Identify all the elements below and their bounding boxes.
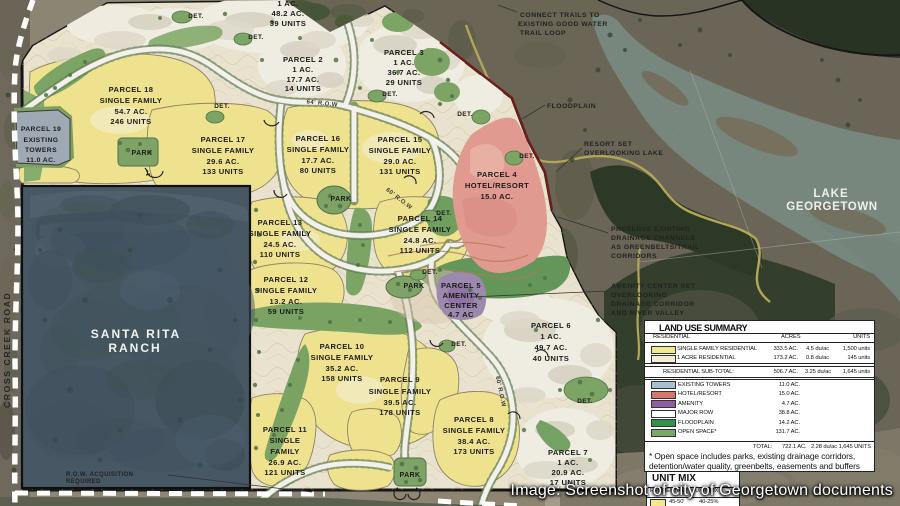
svg-text:SANTA RITA: SANTA RITA (91, 327, 181, 341)
svg-text:DET.: DET. (457, 111, 472, 118)
svg-text:173 UNITS: 173 UNITS (453, 447, 494, 456)
svg-text:158 UNITS: 158 UNITS (321, 374, 362, 383)
svg-text:110 UNITS: 110 UNITS (260, 250, 301, 259)
svg-text:13.2 AC.: 13.2 AC. (270, 297, 303, 306)
svg-text:SINGLE FAMILY: SINGLE FAMILY (369, 146, 432, 155)
svg-text:SINGLE FAMILY: SINGLE FAMILY (311, 353, 374, 362)
svg-text:DRAINAGE CORRIDOR: DRAINAGE CORRIDOR (611, 301, 695, 308)
svg-text:OVERLOOKING: OVERLOOKING (611, 292, 667, 299)
svg-text:PARCEL 10: PARCEL 10 (320, 342, 365, 351)
svg-text:DET.: DET. (214, 103, 229, 110)
svg-text:38.4 AC.: 38.4 AC. (458, 437, 491, 446)
svg-text:PARCEL 7: PARCEL 7 (548, 448, 588, 457)
svg-text:1 AC.: 1 AC. (277, 0, 298, 8)
svg-text:FAMILY: FAMILY (270, 447, 300, 456)
svg-text:FLOODPLAIN: FLOODPLAIN (547, 103, 596, 110)
svg-text:EXISTING GOOD WATER: EXISTING GOOD WATER (518, 21, 608, 28)
svg-text:1 AC.: 1 AC. (540, 332, 561, 341)
svg-text:20.9 AC.: 20.9 AC. (552, 468, 585, 477)
svg-text:PARCEL 8: PARCEL 8 (454, 415, 494, 424)
svg-text:PARCEL 17: PARCEL 17 (201, 135, 246, 144)
svg-text:178 UNITS: 178 UNITS (379, 408, 420, 417)
svg-text:GEORGETOWN: GEORGETOWN (786, 201, 877, 213)
svg-text:17.7 AC.: 17.7 AC. (287, 75, 320, 84)
svg-text:SINGLE FAMILY: SINGLE FAMILY (369, 387, 432, 396)
svg-text:DET.: DET. (519, 153, 534, 160)
svg-text:PARCEL 9: PARCEL 9 (380, 375, 420, 384)
svg-text:SINGLE FAMILY: SINGLE FAMILY (100, 96, 163, 105)
svg-text:AMENITY CENTER SET: AMENITY CENTER SET (611, 283, 696, 290)
svg-text:SINGLE: SINGLE (270, 436, 301, 445)
svg-text:15.0 AC.: 15.0 AC. (481, 192, 514, 201)
svg-text:SINGLE FAMILY: SINGLE FAMILY (287, 145, 350, 154)
svg-text:PARK: PARK (331, 196, 352, 203)
svg-text:AND RIVER VALLEY: AND RIVER VALLEY (611, 310, 685, 317)
svg-text:AMENITY: AMENITY (443, 291, 480, 300)
svg-text:29.0 AC.: 29.0 AC. (384, 157, 417, 166)
svg-text:49.7 AC.: 49.7 AC. (535, 343, 568, 352)
svg-text:35.2 AC.: 35.2 AC. (326, 364, 359, 373)
svg-text:59 UNITS: 59 UNITS (268, 307, 305, 316)
svg-text:40 UNITS: 40 UNITS (533, 354, 570, 363)
svg-text:PARK: PARK (400, 472, 421, 479)
svg-text:PARCEL 15: PARCEL 15 (378, 135, 423, 144)
svg-text:112 UNITS: 112 UNITS (400, 246, 441, 255)
svg-text:PARCEL 2: PARCEL 2 (283, 55, 323, 64)
svg-text:17.7 AC.: 17.7 AC. (302, 156, 335, 165)
svg-text:PARCEL 13: PARCEL 13 (258, 218, 303, 227)
svg-text:TRAIL LOOP: TRAIL LOOP (520, 30, 566, 37)
svg-text:EXISTING: EXISTING (24, 137, 59, 144)
svg-text:48.2 AC.: 48.2 AC. (272, 9, 305, 18)
svg-text:29 UNITS: 29 UNITS (386, 78, 423, 87)
svg-text:DET.: DET. (248, 34, 263, 41)
svg-text:SINGLE FAMILY: SINGLE FAMILY (192, 146, 255, 155)
svg-text:DET.: DET. (188, 13, 203, 20)
svg-text:CORRIDORS: CORRIDORS (611, 253, 657, 260)
svg-text:1 AC.: 1 AC. (292, 65, 313, 74)
svg-text:R.O.W. ACQUISITION: R.O.W. ACQUISITION (66, 472, 133, 478)
svg-text:PARCEL 12: PARCEL 12 (264, 275, 309, 284)
svg-text:39.5 AC.: 39.5 AC. (384, 398, 417, 407)
svg-text:DET.: DET. (382, 91, 397, 98)
svg-text:PARCEL 18: PARCEL 18 (109, 85, 154, 94)
svg-text:SINGLE FAMILY: SINGLE FAMILY (249, 229, 312, 238)
svg-text:RANCH: RANCH (108, 341, 161, 355)
svg-text:LAKE: LAKE (813, 188, 848, 200)
svg-text:CONNECT TRAILS TO: CONNECT TRAILS TO (520, 12, 600, 19)
svg-text:PARCEL 19: PARCEL 19 (21, 126, 61, 133)
svg-text:PARCEL 4: PARCEL 4 (477, 170, 517, 179)
svg-text:131 UNITS: 131 UNITS (379, 167, 420, 176)
svg-text:AS GREENBELTS/TRAIL: AS GREENBELTS/TRAIL (611, 244, 700, 251)
svg-text:133 UNITS: 133 UNITS (202, 167, 243, 176)
svg-text:246 UNITS: 246 UNITS (110, 117, 151, 126)
svg-text:11.0 AC.: 11.0 AC. (26, 157, 55, 164)
svg-text:SINGLE FAMILY: SINGLE FAMILY (389, 225, 452, 234)
svg-text:39 UNITS: 39 UNITS (270, 19, 307, 28)
svg-text:36.7 AC.: 36.7 AC. (388, 68, 421, 77)
svg-text:PRESERVE EXISTING: PRESERVE EXISTING (611, 226, 690, 233)
svg-text:26.9 AC.: 26.9 AC. (269, 458, 302, 467)
svg-text:1 AC.: 1 AC. (393, 58, 414, 67)
svg-text:DET.: DET. (436, 210, 451, 217)
svg-text:4.7 AC: 4.7 AC (448, 310, 474, 319)
svg-text:PARCEL 3: PARCEL 3 (384, 48, 424, 57)
svg-text:HOTEL/RESORT: HOTEL/RESORT (465, 181, 529, 190)
svg-text:CROSS CREEK ROAD: CROSS CREEK ROAD (2, 292, 12, 408)
svg-text:PARCEL 6: PARCEL 6 (531, 321, 571, 330)
svg-text:DRAINAGE CHANNELS: DRAINAGE CHANNELS (611, 235, 695, 242)
svg-text:PARCEL 16: PARCEL 16 (296, 134, 341, 143)
svg-text:RESORT SET: RESORT SET (584, 141, 633, 148)
svg-text:OVERLOOKING LAKE: OVERLOOKING LAKE (584, 150, 663, 157)
svg-text:PARCEL 5: PARCEL 5 (441, 281, 481, 290)
svg-text:PARK: PARK (404, 283, 425, 290)
svg-text:DET.: DET. (577, 398, 592, 405)
svg-text:1 AC.: 1 AC. (557, 458, 578, 467)
svg-text:DET.: DET. (422, 269, 437, 276)
svg-text:CENTER: CENTER (444, 301, 478, 310)
svg-text:121 UNITS: 121 UNITS (264, 468, 305, 477)
svg-text:TOWERS: TOWERS (25, 147, 57, 154)
svg-text:29.6 AC.: 29.6 AC. (207, 157, 240, 166)
svg-text:PARK: PARK (132, 150, 153, 157)
svg-text:24.8 AC.: 24.8 AC. (404, 236, 437, 245)
svg-text:24.5 AC.: 24.5 AC. (264, 240, 297, 249)
svg-text:SINGLE FAMILY: SINGLE FAMILY (255, 286, 318, 295)
svg-text:54.7 AC.: 54.7 AC. (115, 107, 148, 116)
svg-text:SINGLE FAMILY: SINGLE FAMILY (443, 426, 506, 435)
svg-text:14 UNITS: 14 UNITS (285, 84, 322, 93)
svg-text:DET.: DET. (451, 341, 466, 348)
svg-text:80 UNITS: 80 UNITS (300, 166, 337, 175)
svg-text:REQUIRED: REQUIRED (66, 479, 101, 485)
svg-text:PARCEL 11: PARCEL 11 (263, 425, 308, 434)
